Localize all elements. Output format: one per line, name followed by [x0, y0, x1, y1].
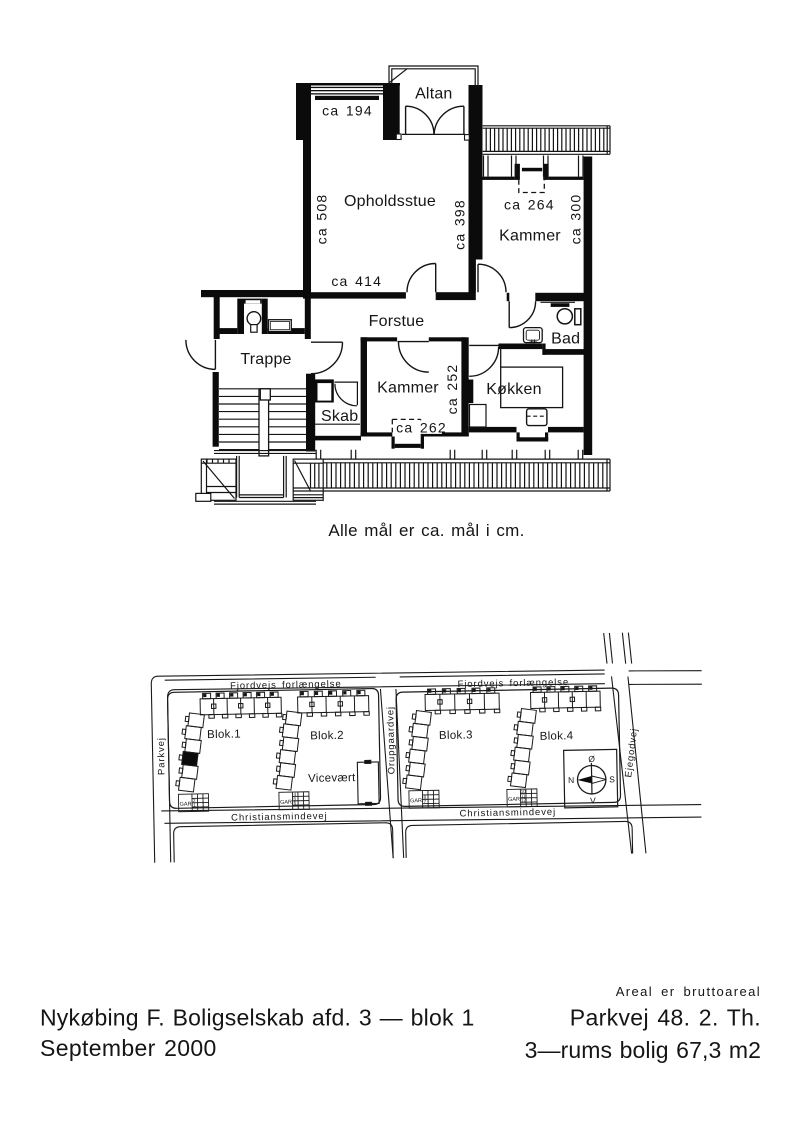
- svg-text:Nykøbing F. Boligselskab afd.: Nykøbing F. Boligselskab afd. 3 — blok 1: [40, 1005, 474, 1031]
- svg-text:ca 264: ca 264: [504, 197, 555, 213]
- svg-text:Ø: Ø: [588, 754, 595, 764]
- svg-text:September 2000: September 2000: [40, 1035, 217, 1061]
- svg-text:3—rums bolig 67,3 m2: 3—rums bolig 67,3 m2: [525, 1037, 761, 1063]
- svg-text:Altan: Altan: [415, 86, 452, 103]
- svg-text:GAR.: GAR.: [410, 798, 424, 804]
- svg-text:Parkvej: Parkvej: [156, 737, 168, 775]
- svg-text:S: S: [609, 774, 615, 784]
- svg-text:Trappe: Trappe: [240, 351, 291, 368]
- svg-text:ca 508: ca 508: [314, 194, 330, 245]
- svg-text:Alle mål er ca. mål i cm.: Alle mål er ca. mål i cm.: [328, 521, 524, 540]
- svg-text:Blok.4: Blok.4: [540, 730, 574, 743]
- svg-text:GAR.: GAR.: [180, 801, 194, 807]
- svg-text:V: V: [590, 795, 596, 805]
- svg-text:GAR.: GAR.: [280, 800, 294, 806]
- svg-text:ca 398: ca 398: [452, 199, 468, 250]
- svg-text:Køkken: Køkken: [486, 381, 541, 398]
- svg-text:N: N: [568, 775, 574, 785]
- svg-text:Bad: Bad: [551, 330, 580, 347]
- svg-text:Areal er bruttoareal: Areal er bruttoareal: [616, 984, 761, 999]
- svg-text:12: 12: [521, 798, 527, 803]
- svg-text:Christiansmindevej: Christiansmindevej: [231, 811, 328, 824]
- svg-text:Kammer: Kammer: [499, 228, 561, 245]
- svg-text:Blok.2: Blok.2: [310, 730, 344, 743]
- svg-text:Blok.3: Blok.3: [439, 729, 473, 742]
- svg-text:Fjordvejs forlængelse: Fjordvejs forlængelse: [457, 677, 569, 690]
- svg-text:Blok.1: Blok.1: [207, 728, 241, 741]
- svg-text:Orupgaardvej: Orupgaardvej: [385, 706, 397, 775]
- svg-text:Skab: Skab: [321, 408, 358, 425]
- svg-text:ca 262: ca 262: [396, 420, 447, 436]
- svg-text:Kammer: Kammer: [377, 380, 439, 397]
- svg-text:Parkvej 48. 2. Th.: Parkvej 48. 2. Th.: [570, 1005, 761, 1031]
- svg-text:ca 414: ca 414: [331, 273, 382, 289]
- svg-text:ca 194: ca 194: [322, 103, 373, 119]
- svg-text:Christiansmindevej: Christiansmindevej: [459, 807, 556, 820]
- svg-text:Vicevært: Vicevært: [308, 772, 356, 785]
- svg-text:ca 252: ca 252: [444, 364, 460, 415]
- svg-text:Fjordvejs forlængelse: Fjordvejs forlængelse: [230, 679, 342, 692]
- svg-text:Opholdsstue: Opholdsstue: [344, 193, 436, 210]
- svg-text:Forstue: Forstue: [369, 313, 425, 330]
- svg-text:ca 300: ca 300: [568, 194, 584, 245]
